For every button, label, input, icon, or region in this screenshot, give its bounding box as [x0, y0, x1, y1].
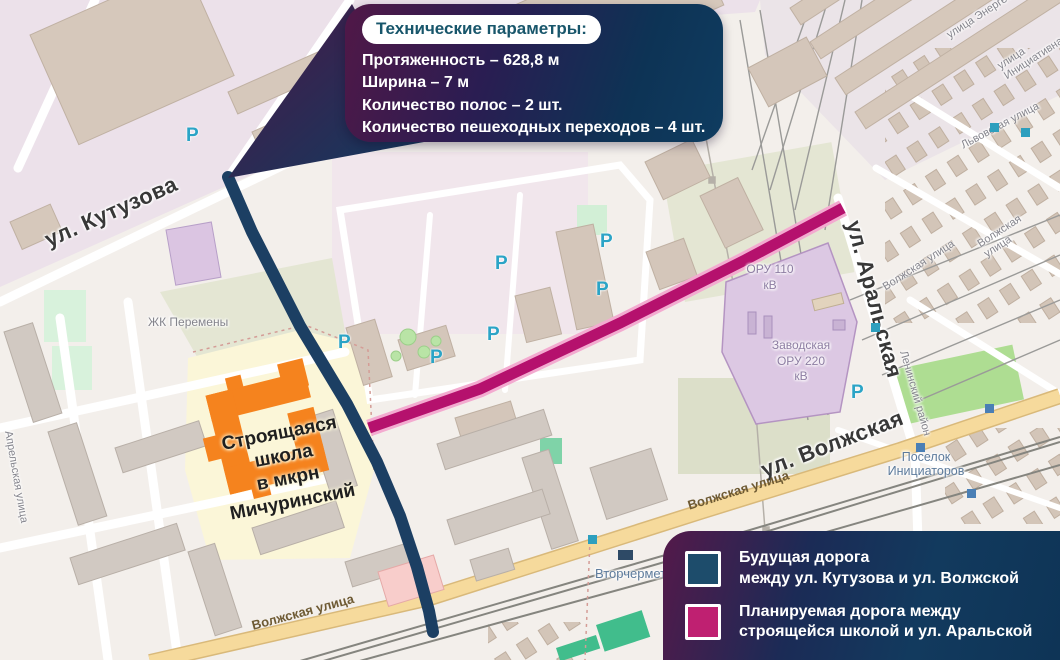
legend-label-planned-road: Планируемая дорога между строящейся школ…	[739, 602, 1032, 643]
stop-icon	[990, 123, 999, 132]
stop-icon	[588, 535, 597, 544]
station-marker	[618, 550, 633, 560]
purple-building	[166, 222, 221, 285]
stop-icon	[871, 323, 880, 332]
stop-icon	[1021, 128, 1030, 137]
legend-label-future-road: Будущая дорога между ул. Кутузова и ул. …	[739, 548, 1019, 589]
stop-icon	[985, 404, 994, 413]
stop-icon	[916, 443, 925, 452]
technical-parameters-callout: Технические параметры: Протяженность – 6…	[345, 4, 723, 142]
legend-item-planned-road: Планируемая дорога между строящейся школ…	[685, 602, 1060, 643]
legend-item-future-road: Будущая дорога между ул. Кутузова и ул. …	[685, 548, 1060, 589]
stop-icon	[967, 489, 976, 498]
callout-parameters: Протяженность – 628,8 м Ширина – 7 м Кол…	[345, 50, 723, 140]
callout-title: Технические параметры:	[362, 15, 601, 44]
legend-swatch-future-road	[685, 551, 721, 587]
road-project-infographic: ул. Кутузова ул. Аральская ул. Волжская …	[0, 0, 1060, 660]
map-legend: Будущая дорога между ул. Кутузова и ул. …	[663, 531, 1060, 660]
legend-swatch-planned-road	[685, 604, 721, 640]
